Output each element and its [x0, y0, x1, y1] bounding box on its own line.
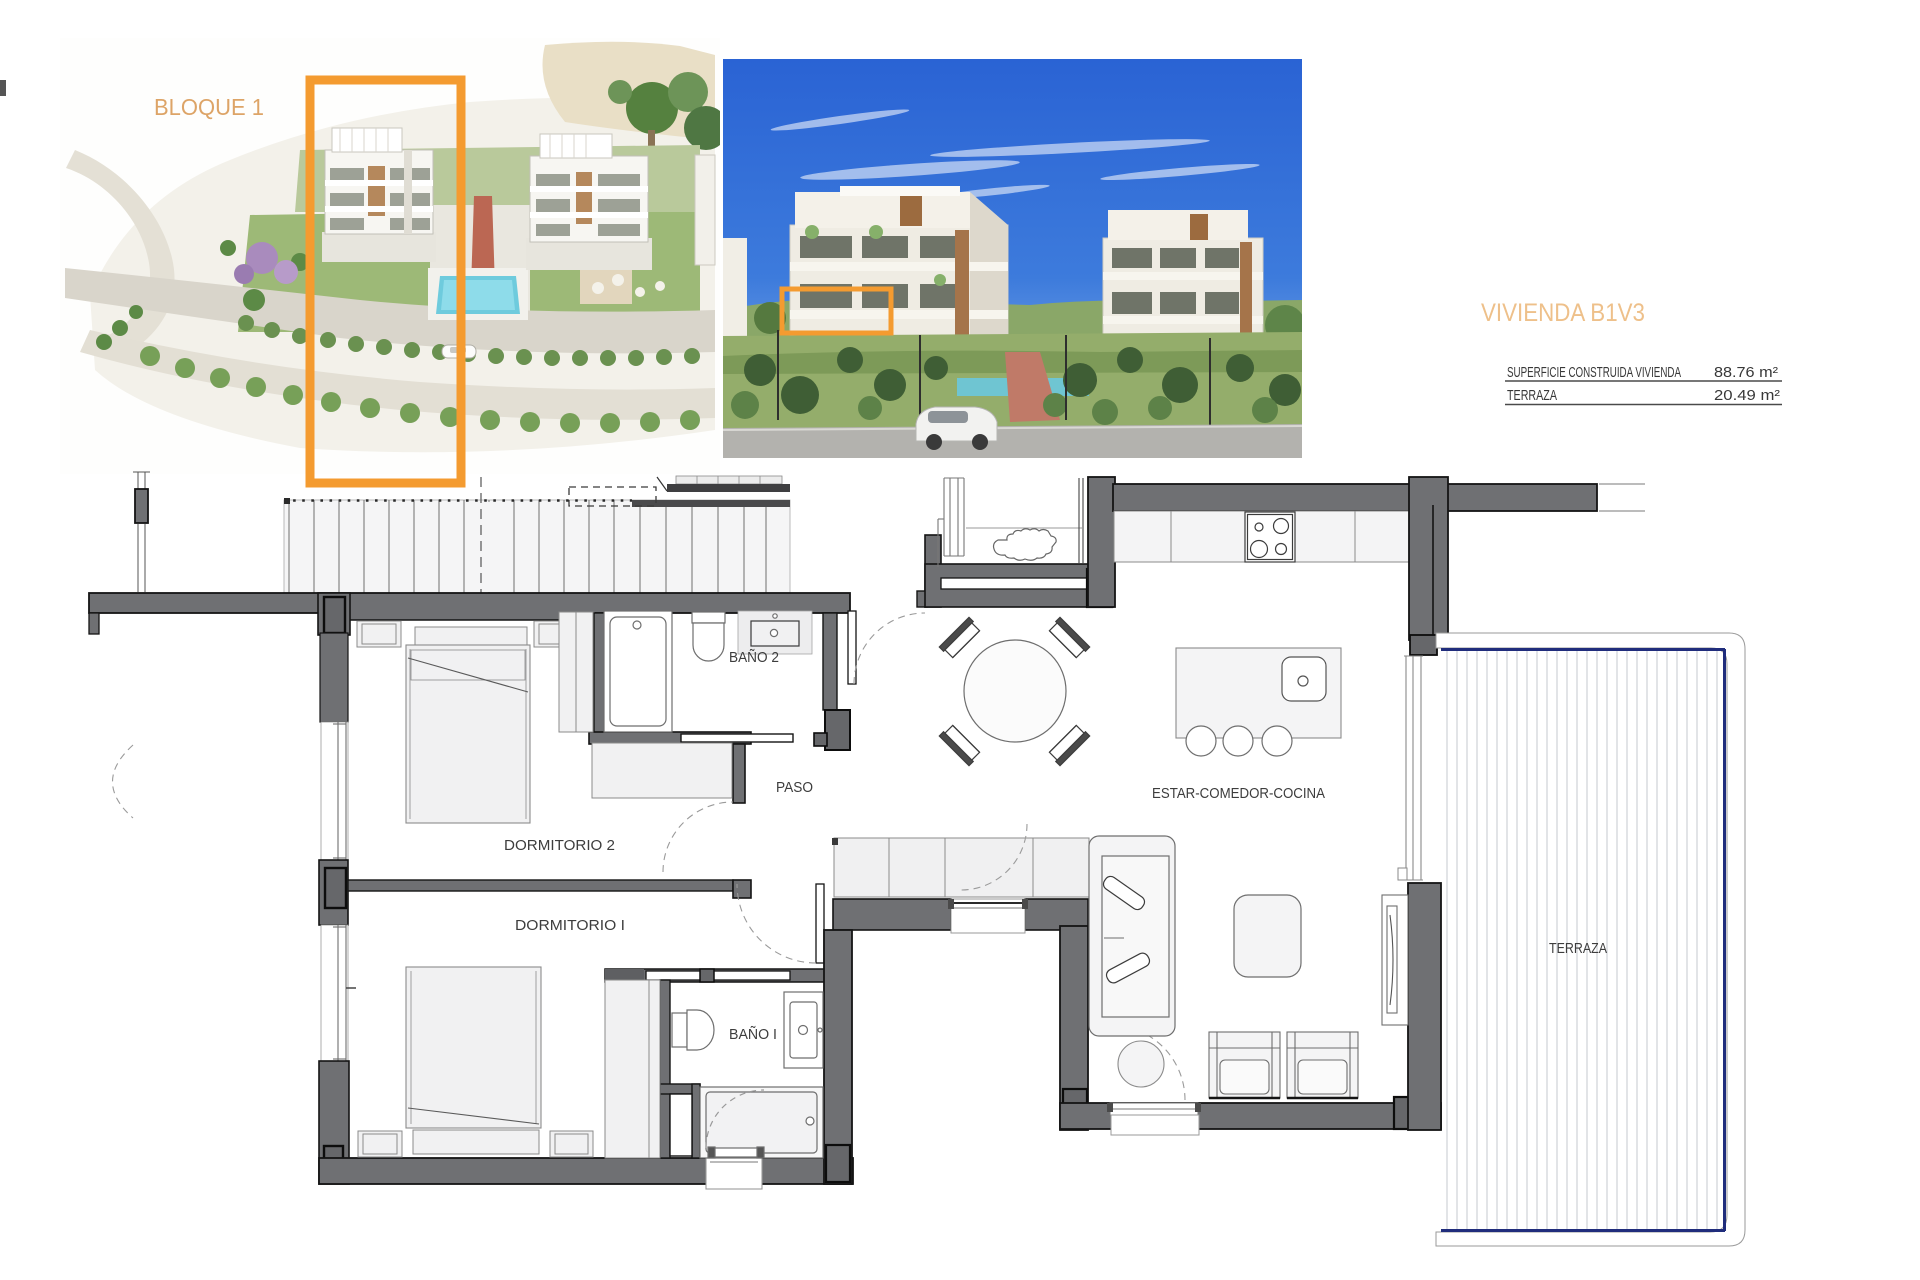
svg-text:VIVIENDA B1V3: VIVIENDA B1V3 [1481, 299, 1645, 327]
svg-text:BAÑO 2: BAÑO 2 [729, 649, 779, 666]
svg-text:DORMITORIO I: DORMITORIO I [515, 918, 625, 934]
svg-text:TERRAZA: TERRAZA [1549, 941, 1607, 957]
svg-text:SUPERFICIE CONSTRUIDA VIVIENDA: SUPERFICIE CONSTRUIDA VIVIENDA [1507, 365, 1681, 381]
svg-text:DORMITORIO 2: DORMITORIO 2 [504, 838, 615, 854]
svg-text:BLOQUE 1: BLOQUE 1 [154, 94, 264, 120]
svg-text:PASO: PASO [776, 780, 813, 796]
svg-text:BAÑO I: BAÑO I [729, 1026, 777, 1043]
svg-text:88.76 m²: 88.76 m² [1714, 365, 1778, 381]
svg-text:20.49 m²: 20.49 m² [1714, 388, 1780, 404]
svg-text:TERRAZA: TERRAZA [1507, 388, 1557, 404]
svg-text:ESTAR-COMEDOR-COCINA: ESTAR-COMEDOR-COCINA [1152, 786, 1325, 802]
